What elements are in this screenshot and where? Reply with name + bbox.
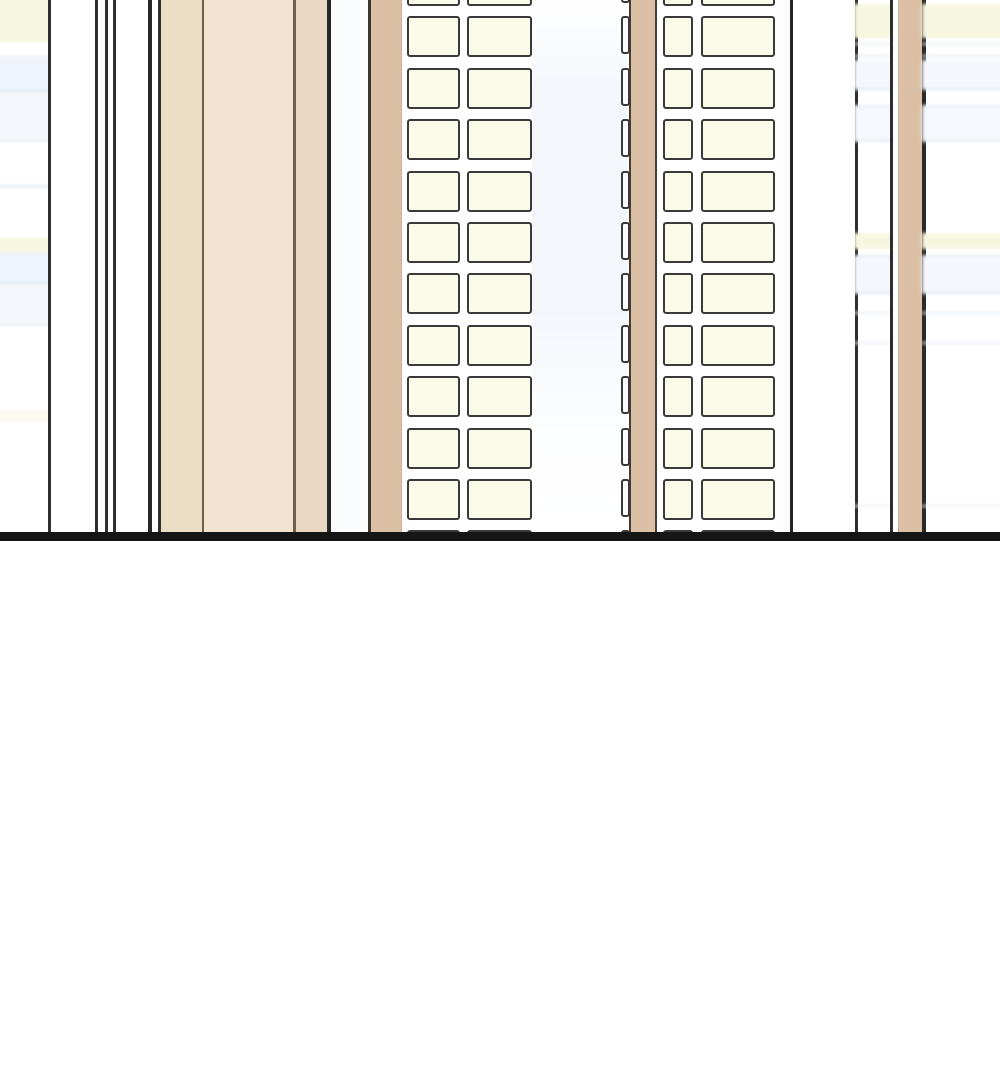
blurred-floor-band xyxy=(0,56,52,90)
window xyxy=(701,68,775,109)
left-tower-window-col-wide xyxy=(467,0,532,533)
blurred-floor-band xyxy=(922,505,1000,507)
facade-white-stripe xyxy=(116,0,148,533)
window xyxy=(407,479,460,520)
blurred-floor-band xyxy=(0,92,52,140)
window xyxy=(663,325,693,366)
blurred-floor-band xyxy=(854,88,894,90)
left-tower-window-col-narrow xyxy=(407,0,460,533)
window xyxy=(701,0,775,6)
facade-tinted-stripe xyxy=(331,0,368,533)
window xyxy=(701,119,775,160)
bg-building-far-right-blur-bands xyxy=(926,0,1000,533)
window xyxy=(467,119,532,160)
skyline-area xyxy=(0,0,1000,533)
window xyxy=(407,325,460,366)
window xyxy=(467,68,532,109)
blurred-floor-band xyxy=(854,257,894,292)
right-tower-window-col-narrow xyxy=(663,0,693,533)
blurred-floor-band xyxy=(0,324,52,326)
tan-pillar xyxy=(899,0,922,533)
blurred-floor-band xyxy=(0,0,52,42)
bg-building-far-right xyxy=(926,0,1000,533)
blurred-floor-band xyxy=(922,233,1000,249)
blurred-floor-band xyxy=(854,55,894,57)
window xyxy=(621,119,630,157)
window xyxy=(701,479,775,520)
facade-sky-gap xyxy=(532,0,631,533)
blurred-floor-band xyxy=(922,312,1000,314)
window xyxy=(407,273,460,314)
blurred-floor-band xyxy=(922,88,1000,90)
window xyxy=(467,428,532,469)
bg-building-right-slice xyxy=(858,0,890,533)
window xyxy=(663,479,693,520)
cityscape-illustration xyxy=(0,0,1000,1080)
window xyxy=(407,222,460,263)
window xyxy=(407,171,460,212)
bg-building-far-left xyxy=(0,0,48,533)
window xyxy=(621,171,630,209)
window xyxy=(663,16,693,57)
window xyxy=(621,325,630,363)
blurred-floor-band xyxy=(0,185,52,188)
tan-pillar xyxy=(631,0,655,533)
window xyxy=(467,479,532,520)
window xyxy=(621,479,630,517)
window xyxy=(621,273,630,311)
blurred-floor-band xyxy=(922,292,1000,294)
blurred-floor-band xyxy=(922,43,1000,45)
window xyxy=(701,16,775,57)
blurred-floor-band xyxy=(922,60,1000,88)
blurred-floor-band xyxy=(922,107,1000,140)
blurred-floor-band xyxy=(854,140,894,142)
window xyxy=(701,428,775,469)
blurred-floor-band xyxy=(854,342,894,344)
blurred-floor-band xyxy=(0,284,52,324)
blurred-floor-band xyxy=(854,312,894,314)
window xyxy=(663,273,693,314)
bg-building-far-left-blur-bands xyxy=(0,0,48,533)
window xyxy=(701,222,775,263)
window xyxy=(621,222,630,260)
right-tower-side-window-col xyxy=(621,0,630,533)
blurred-floor-band xyxy=(922,342,1000,344)
window xyxy=(407,16,460,57)
window xyxy=(467,273,532,314)
blurred-floor-band xyxy=(922,257,1000,292)
tan-block-panel xyxy=(204,0,293,533)
blurred-floor-band xyxy=(854,107,894,140)
window xyxy=(407,0,460,6)
window xyxy=(467,171,532,212)
window xyxy=(621,16,630,54)
window xyxy=(663,222,693,263)
blurred-floor-band xyxy=(0,410,52,422)
window xyxy=(621,376,630,414)
window xyxy=(467,0,532,6)
window xyxy=(663,68,693,109)
window xyxy=(701,325,775,366)
tan-block-panel xyxy=(161,0,202,533)
facade-white-stripe xyxy=(775,0,790,533)
blurred-floor-band xyxy=(922,140,1000,142)
window xyxy=(621,428,630,466)
window xyxy=(701,376,775,417)
ground-line xyxy=(0,532,1000,541)
window xyxy=(621,68,630,106)
empty-foreground xyxy=(0,541,1000,1080)
window xyxy=(701,273,775,314)
window xyxy=(407,376,460,417)
blurred-floor-band xyxy=(0,238,52,252)
blurred-floor-band xyxy=(922,4,1000,38)
window xyxy=(663,0,693,6)
facade-white-stripe xyxy=(51,0,95,533)
window xyxy=(663,171,693,212)
facade-white-stripe xyxy=(98,0,105,533)
blurred-floor-band xyxy=(854,233,894,249)
window xyxy=(663,119,693,160)
window xyxy=(621,0,630,3)
blurred-floor-band xyxy=(854,43,894,45)
window xyxy=(467,16,532,57)
blurred-floor-band xyxy=(854,292,894,294)
bg-building-right-slice-blur-bands xyxy=(858,0,890,533)
tan-block-panel xyxy=(296,0,327,533)
window xyxy=(467,222,532,263)
window xyxy=(663,376,693,417)
window xyxy=(701,171,775,212)
tan-pillar xyxy=(371,0,401,533)
window xyxy=(467,325,532,366)
facade-white-stripe xyxy=(793,0,855,533)
right-tower-window-col-wide xyxy=(701,0,775,533)
window xyxy=(407,119,460,160)
blurred-floor-band xyxy=(922,55,1000,57)
blurred-floor-band xyxy=(0,140,52,142)
blurred-floor-band xyxy=(854,4,894,38)
blurred-floor-band xyxy=(854,60,894,88)
blurred-floor-band xyxy=(854,505,894,507)
window xyxy=(407,68,460,109)
window xyxy=(407,428,460,469)
blurred-floor-band xyxy=(0,252,52,282)
window xyxy=(467,376,532,417)
window xyxy=(663,428,693,469)
